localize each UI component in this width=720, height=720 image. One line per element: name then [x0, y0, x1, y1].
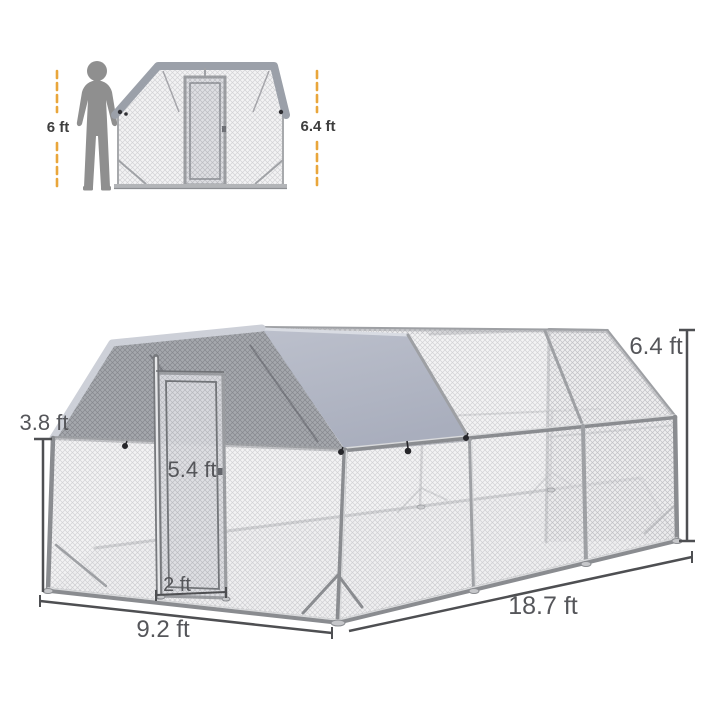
front-view-door: [185, 77, 226, 185]
cage-height-label: 6.4 ft: [300, 118, 335, 135]
cage-front-view: [114, 66, 287, 189]
dimension-label-door-width: 2 ft: [163, 574, 191, 596]
dimension-label-door-height: 5.4 ft: [168, 457, 217, 482]
scale-reference: 6 ft: [47, 61, 336, 191]
person-height-label: 6 ft: [47, 119, 70, 136]
cage-3d-view: 3.8 ft 5.4 ft 2 ft 9.2 ft 18.7 ft 6.4 ft: [20, 328, 695, 643]
dimension-label-width: 9.2 ft: [136, 616, 190, 643]
person-silhouette-icon: [77, 61, 117, 191]
product-dimension-image: 6 ft: [0, 0, 720, 720]
dimension-label-total-height: 6.4 ft: [629, 333, 683, 360]
dimension-diagram: 6 ft: [0, 0, 720, 720]
dimension-label-wall-height: 3.8 ft: [20, 410, 69, 435]
dimension-label-depth: 18.7 ft: [508, 592, 578, 620]
door-latch: [218, 468, 223, 475]
